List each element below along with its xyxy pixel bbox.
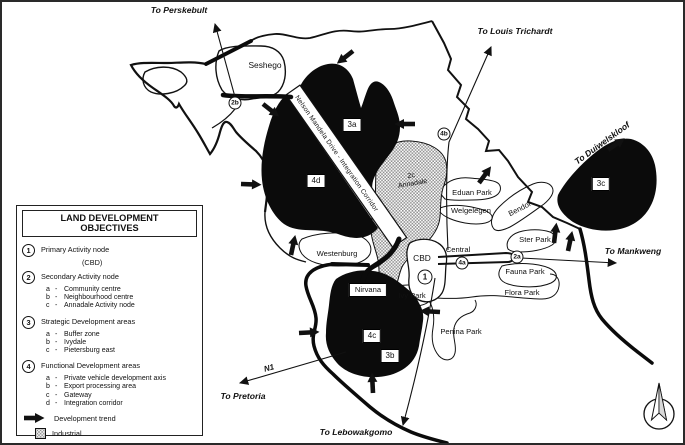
development-trend-arrow-icon: [22, 412, 48, 424]
node-circle-2a: 2a: [511, 251, 524, 264]
area-label-nirvana: Nirvana: [349, 283, 387, 297]
zone-box-4c: 4c: [363, 329, 381, 343]
zone-box-3b: 3b: [381, 349, 400, 363]
legend-subitem: a-Community centre: [46, 286, 197, 294]
node-circle-1-cbd: 1: [418, 270, 433, 285]
line-n1-to-pretoria: [240, 352, 346, 383]
zone-box-3c: 3c: [592, 177, 610, 191]
area-label-penina-park: Penina Park: [440, 328, 481, 336]
north-compass: [644, 383, 674, 429]
node-circle-4b: 4b: [438, 128, 451, 141]
direction-label-mankweng: To Mankweng: [605, 246, 662, 256]
zone-box-4d: 4d: [307, 174, 326, 188]
area-label-westenburg: Westenburg: [317, 250, 358, 258]
zone-box-3a: 3a: [343, 118, 362, 132]
legend-circle-1: 1: [22, 244, 35, 257]
legend-label-cbd: (CBD): [82, 259, 197, 266]
area-label-central: Central: [446, 246, 470, 254]
trend-arrow: [286, 234, 300, 256]
land-development-objectives-map: Nelson Mandela Drive - Integration Corri…: [0, 0, 685, 445]
boundary-nw-diagonal: [206, 41, 251, 64]
legend-item-strategic: 3 Strategic Development areas: [22, 316, 197, 329]
legend-industrial-label: Industrial: [52, 429, 82, 438]
legend-label-secondary: Secondary Activity node: [41, 271, 119, 282]
area-label-ster-park: Ster Park: [519, 236, 551, 244]
legend-trend-label: Development trend: [54, 414, 116, 423]
area-label-ivy-park: Ivy Park: [398, 292, 425, 300]
line-to-perskebult: [215, 24, 235, 97]
legend-subitem: c-Gateway: [46, 392, 197, 400]
trend-arrow: [241, 179, 262, 190]
legend-subitem: c-Annadale Activity node: [46, 302, 197, 310]
legend-subitem: a-Buffer zone: [46, 331, 197, 339]
road-west-branch: [332, 264, 368, 265]
trend-arrow: [475, 163, 495, 185]
trend-arrow: [563, 230, 577, 252]
legend-subitem: d-Integration corridor: [46, 400, 197, 408]
activity-axis-4a-road: [438, 253, 514, 264]
legend-trend-row: Development trend: [22, 412, 197, 424]
west-wing-inner-shape: [143, 67, 187, 94]
area-label-eduan-park: Eduan Park: [452, 189, 492, 197]
legend-title: LAND DEVELOPMENT OBJECTIVES: [22, 210, 197, 237]
legend-label-functional: Functional Development areas: [41, 360, 140, 371]
north-boundary: [251, 21, 432, 41]
direction-label-pretoria: To Pretoria: [220, 391, 265, 401]
industrial-swatch-icon: [35, 428, 46, 439]
legend-panel: LAND DEVELOPMENT OBJECTIVES 1 Primary Ac…: [16, 205, 203, 436]
legend-subitem: c-Pietersburg east: [46, 347, 197, 355]
legend-title-line1: LAND DEVELOPMENT: [23, 213, 196, 223]
legend-subitem: b-Ivydale: [46, 339, 197, 347]
node-circle-2b: 2b: [229, 97, 242, 110]
direction-label-louis-trichardt: To Louis Trichardt: [478, 26, 553, 36]
legend-circle-2: 2: [22, 271, 35, 284]
legend-circle-3: 3: [22, 316, 35, 329]
area-label-seshego: Seshego: [248, 61, 281, 69]
direction-label-lebowakgomo: To Lebowakgomo: [320, 427, 393, 437]
area-label-flora-park: Flora Park: [504, 289, 539, 297]
line-to-mankweng: [521, 258, 616, 263]
legend-subitem: b-Neighbourhood centre: [46, 294, 197, 302]
legend-circle-4: 4: [22, 360, 35, 373]
area-label-welgelegen: Welgelegen: [451, 207, 491, 215]
node-circle-4a: 4a: [456, 257, 469, 270]
west-wing-outline: [131, 62, 268, 212]
legend-item-primary: 1 Primary Activity node: [22, 244, 197, 257]
legend-item-secondary: 2 Secondary Activity node: [22, 271, 197, 284]
legend-industrial-row: Industrial: [35, 428, 197, 439]
area-label-fauna-park: Fauna Park: [505, 268, 544, 276]
legend-subitem: a-Private vehicle development axis: [46, 375, 197, 383]
legend-title-line2: OBJECTIVES: [23, 223, 196, 233]
legend-item-functional: 4 Functional Development areas: [22, 360, 197, 373]
direction-label-perskebult: To Perskebult: [151, 5, 208, 15]
area-label-cbd: CBD: [413, 254, 431, 262]
legend-label-strategic: Strategic Development areas: [41, 316, 135, 327]
legend-subitem: b-Export processing area: [46, 383, 197, 391]
legend-label-primary: Primary Activity node: [41, 244, 109, 255]
